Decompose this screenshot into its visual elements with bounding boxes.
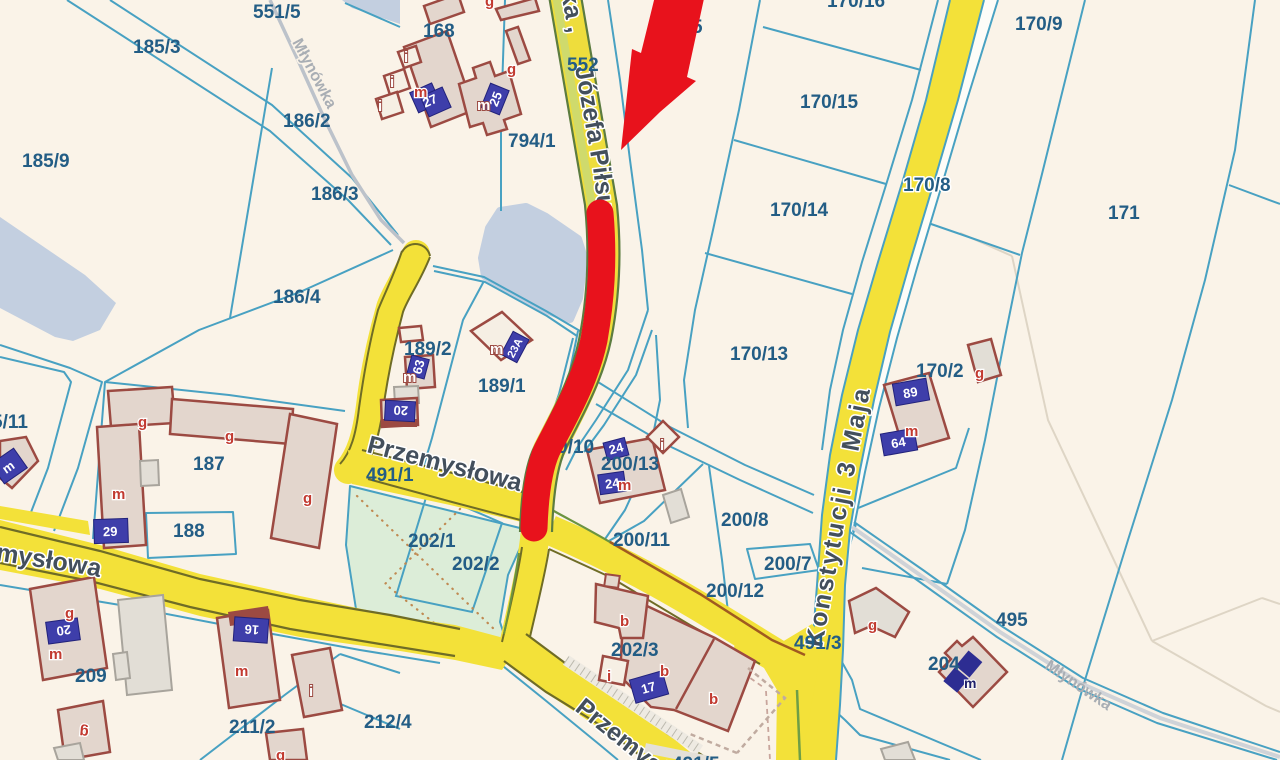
svg-text:491/1: 491/1 — [366, 465, 414, 486]
svg-text:170/13: 170/13 — [730, 344, 788, 365]
svg-text:29: 29 — [103, 524, 118, 539]
svg-text:i: i — [660, 437, 664, 454]
svg-text:g: g — [485, 0, 494, 10]
svg-text:g: g — [507, 61, 516, 78]
svg-text:170/8: 170/8 — [903, 175, 951, 196]
svg-text:i: i — [309, 683, 313, 700]
svg-text:m: m — [49, 646, 62, 663]
svg-text:551/5: 551/5 — [253, 2, 301, 23]
svg-text:m: m — [477, 97, 490, 114]
svg-text:m: m — [964, 675, 976, 691]
svg-text:200/13: 200/13 — [601, 454, 659, 475]
svg-text:794/1: 794/1 — [508, 131, 556, 152]
svg-text:m: m — [414, 84, 427, 101]
svg-text:212/4: 212/4 — [364, 712, 412, 733]
svg-text:185/3: 185/3 — [133, 37, 181, 58]
svg-text:188: 188 — [173, 521, 205, 542]
svg-text:g: g — [138, 414, 147, 431]
svg-text:170/9: 170/9 — [1015, 14, 1063, 35]
svg-text:200/11: 200/11 — [613, 530, 670, 551]
svg-text:491/3: 491/3 — [794, 633, 842, 654]
svg-text:187: 187 — [193, 454, 225, 475]
svg-text:20: 20 — [393, 403, 408, 419]
svg-text:89: 89 — [902, 384, 919, 401]
svg-text:g: g — [868, 617, 877, 634]
svg-text:170/15: 170/15 — [800, 92, 859, 113]
svg-text:i: i — [378, 98, 382, 115]
svg-text:16: 16 — [244, 622, 259, 638]
svg-text:m: m — [112, 486, 125, 503]
svg-text:i: i — [607, 668, 611, 685]
svg-text:211/2: 211/2 — [229, 717, 276, 738]
svg-text:m: m — [403, 369, 416, 386]
svg-text:m: m — [235, 663, 248, 680]
svg-text:m: m — [490, 341, 503, 358]
svg-text:209: 209 — [75, 666, 107, 687]
svg-text:552: 552 — [567, 55, 599, 76]
svg-text:185/9: 185/9 — [22, 151, 70, 172]
svg-text:g: g — [276, 747, 285, 760]
svg-text:170/14: 170/14 — [770, 200, 829, 221]
svg-text:i: i — [404, 49, 408, 66]
svg-text:168: 168 — [423, 21, 455, 42]
svg-text:i: i — [390, 74, 394, 91]
svg-text:204: 204 — [928, 654, 960, 675]
svg-text:b: b — [620, 613, 629, 630]
svg-text:g: g — [225, 428, 234, 445]
svg-text:200/7: 200/7 — [764, 554, 812, 575]
svg-text:200/8: 200/8 — [721, 510, 769, 531]
svg-text:b: b — [709, 691, 718, 708]
svg-text:189/2: 189/2 — [404, 339, 452, 360]
svg-text:202/1: 202/1 — [408, 531, 456, 552]
svg-text:170/2: 170/2 — [916, 361, 964, 382]
svg-text:186/4: 186/4 — [273, 287, 321, 308]
svg-text:200/12: 200/12 — [706, 581, 764, 602]
svg-text:5/11: 5/11 — [0, 412, 28, 433]
svg-text:495: 495 — [996, 610, 1028, 631]
svg-text:g: g — [65, 605, 74, 622]
svg-text:189/1: 189/1 — [478, 376, 526, 397]
svg-text:186/2: 186/2 — [283, 111, 331, 132]
svg-text:186/3: 186/3 — [311, 184, 359, 205]
svg-text:g: g — [79, 723, 90, 741]
svg-text:491/5: 491/5 — [672, 754, 720, 760]
svg-text:20: 20 — [55, 622, 71, 639]
svg-text:g: g — [303, 490, 312, 507]
svg-text:171: 171 — [1108, 203, 1140, 224]
svg-text:170/16: 170/16 — [827, 0, 885, 12]
svg-text:g: g — [975, 365, 984, 382]
svg-text:202/2: 202/2 — [452, 554, 500, 575]
svg-text:b: b — [660, 663, 669, 680]
svg-text:202/3: 202/3 — [611, 640, 659, 661]
svg-text:m: m — [905, 423, 918, 440]
svg-text:m: m — [618, 477, 631, 494]
